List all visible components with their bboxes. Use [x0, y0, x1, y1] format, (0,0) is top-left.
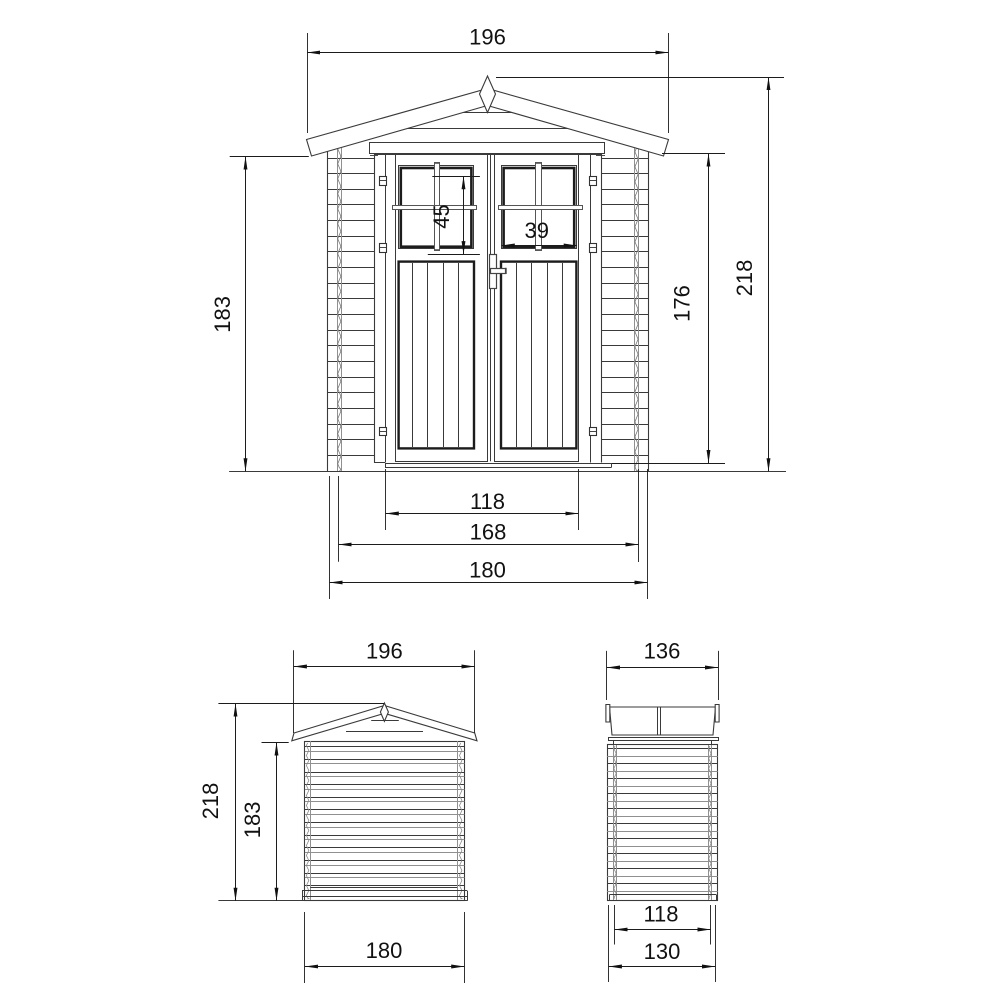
svg-text:183: 183: [210, 296, 235, 333]
svg-text:118: 118: [643, 902, 678, 927]
svg-text:45: 45: [429, 204, 454, 228]
svg-text:176: 176: [670, 285, 695, 322]
svg-text:196: 196: [469, 25, 506, 50]
svg-text:130: 130: [644, 939, 681, 964]
svg-text:180: 180: [469, 558, 506, 583]
svg-text:136: 136: [644, 639, 681, 664]
svg-text:183: 183: [240, 802, 265, 839]
svg-text:168: 168: [470, 520, 507, 545]
svg-text:218: 218: [732, 260, 757, 297]
svg-text:39: 39: [525, 218, 549, 243]
svg-text:218: 218: [198, 783, 223, 820]
svg-text:196: 196: [366, 639, 403, 664]
svg-text:180: 180: [366, 938, 403, 963]
svg-text:118: 118: [470, 489, 505, 514]
